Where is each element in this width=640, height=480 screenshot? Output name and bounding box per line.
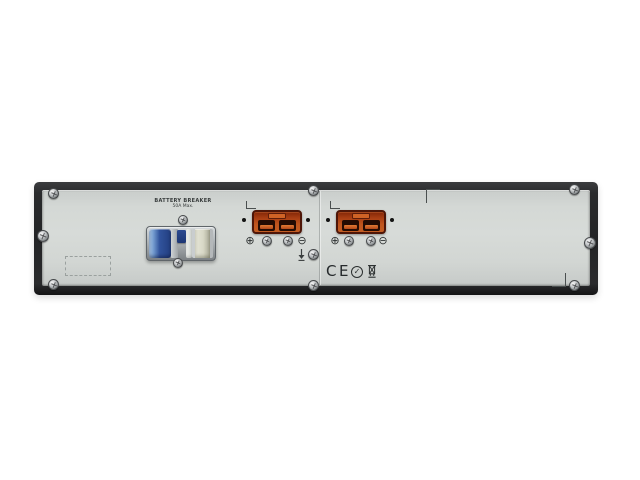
connector-contact	[344, 225, 357, 229]
screw	[569, 280, 580, 291]
plus-terminal-icon: ⊕	[329, 235, 341, 247]
rear-panel-face	[42, 190, 590, 286]
battery-connector-2	[336, 210, 386, 234]
corner-mark-connector1	[246, 201, 256, 209]
connector-contact	[281, 225, 294, 229]
terminal-screw	[262, 236, 272, 246]
connector-slot	[279, 220, 296, 231]
minus-terminal-icon: ⊖	[296, 235, 308, 247]
screw	[308, 185, 319, 196]
panel-seam	[319, 191, 320, 285]
screw	[48, 188, 59, 199]
corner-mark-top-right	[426, 189, 440, 203]
ground-icon	[297, 249, 306, 261]
screw	[173, 258, 183, 268]
breaker-blue-rocker	[149, 229, 171, 258]
corner-mark-connector2	[330, 201, 340, 209]
connector-slot	[342, 220, 359, 231]
connector-slot	[363, 220, 380, 231]
ce-mark: CE	[326, 263, 351, 279]
battery-breaker-label: BATTERY BREAKER 50A Max.	[133, 198, 233, 210]
alignment-dot	[326, 218, 330, 222]
alignment-dot	[306, 218, 310, 222]
screw	[37, 230, 49, 242]
screw	[48, 279, 59, 290]
plus-terminal-icon: ⊕	[244, 235, 256, 247]
screw	[584, 237, 596, 249]
battery-connector-1	[252, 210, 302, 234]
corner-mark-bottom-right	[552, 273, 566, 287]
connector-contact	[260, 225, 273, 229]
battery-breaker-label-line2: 50A Max.	[133, 204, 233, 210]
breaker-blue-tab	[177, 230, 186, 243]
screw	[569, 184, 580, 195]
rcm-mark-icon: ✓	[351, 266, 363, 278]
ground-screw	[308, 249, 319, 260]
connector-slot	[258, 220, 275, 231]
screw	[178, 215, 188, 225]
alignment-dot	[390, 218, 394, 222]
terminal-screw	[283, 236, 293, 246]
screw	[308, 280, 319, 291]
connector-key-tongue	[268, 213, 286, 219]
minus-terminal-icon: ⊖	[377, 235, 389, 247]
connector-key-tongue	[352, 213, 370, 219]
weee-icon	[367, 263, 377, 278]
label-placeholder-box	[65, 256, 111, 276]
terminal-screw	[366, 236, 376, 246]
alignment-dot	[242, 218, 246, 222]
terminal-screw	[344, 236, 354, 246]
breaker-cream-block	[192, 229, 213, 258]
connector-contact	[365, 225, 378, 229]
product-photo-battery-pack-rear-panel: BATTERY BREAKER 50A Max. ⊕ ⊖ ⊕ ⊖	[0, 0, 640, 480]
